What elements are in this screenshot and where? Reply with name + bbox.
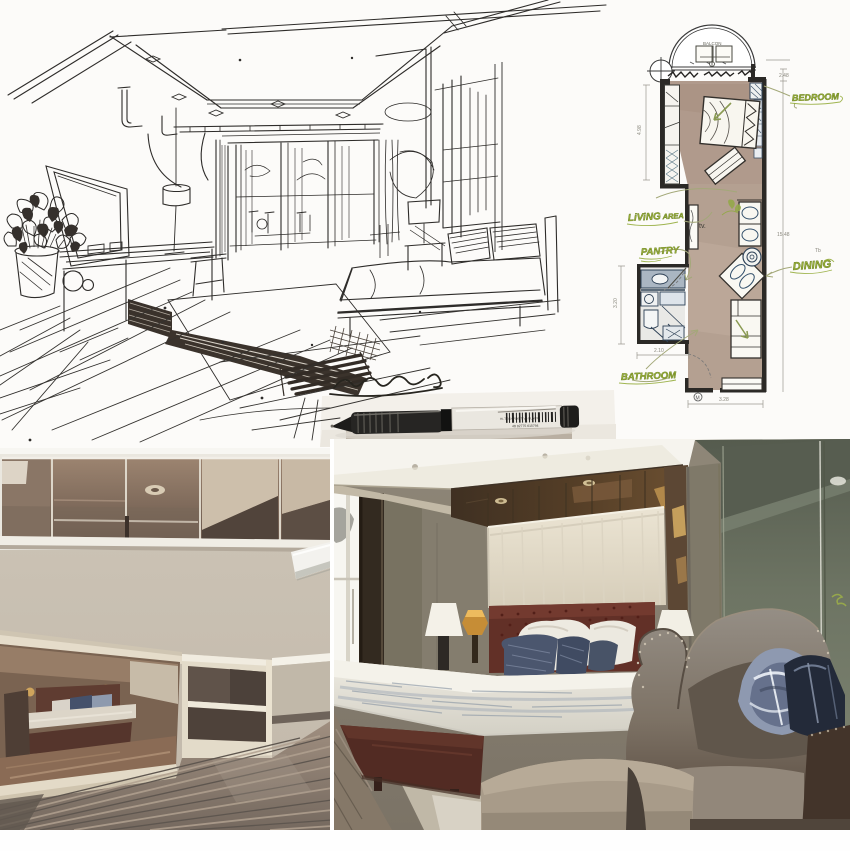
svg-text:Tb: Tb — [815, 248, 821, 254]
svg-text:tv.: tv. — [699, 223, 706, 230]
svg-text:2.10: 2.10 — [654, 348, 664, 354]
svg-text:4.98: 4.98 — [637, 125, 643, 135]
svg-text:2.48: 2.48 — [779, 73, 789, 79]
svg-text:BALCON: BALCON — [703, 41, 722, 46]
svg-text:3.20: 3.20 — [613, 298, 619, 308]
svg-text:BEDROOM: BEDROOM — [792, 91, 840, 103]
svg-text:PANTRY: PANTRY — [641, 245, 681, 258]
svg-text:3.28: 3.28 — [719, 397, 729, 403]
svg-text:15.48: 15.48 — [777, 232, 790, 238]
svg-text:48 02775 615794: 48 02775 615794 — [512, 424, 539, 429]
svg-text:M: M — [696, 396, 700, 402]
